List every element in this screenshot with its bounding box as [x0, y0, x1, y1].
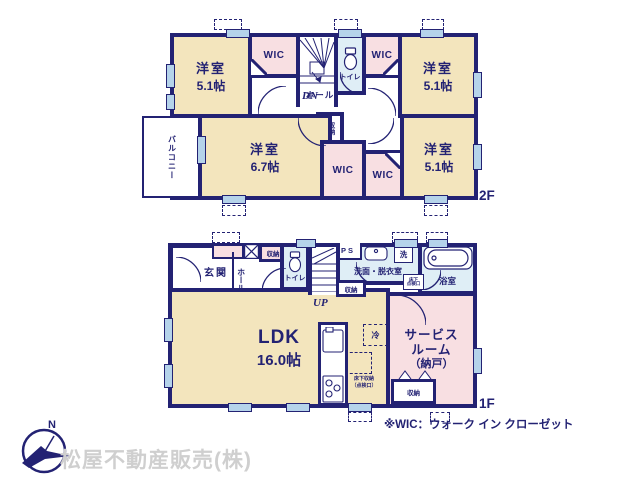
closet-label: 収納 [407, 387, 420, 397]
closet-label: 収納 [267, 248, 280, 258]
eave-dashed-box [424, 205, 448, 216]
door-arc [368, 118, 394, 144]
floor2-wic-top-right: WIC [362, 33, 402, 78]
room-size: 5.1帖 [197, 77, 226, 94]
floor1-hall-label: ホール [236, 262, 246, 298]
wic-label: WIC [373, 170, 394, 181]
window [394, 239, 418, 248]
room-size: 5.1帖 [424, 77, 453, 94]
refrigerator-label: 冷 [372, 330, 380, 341]
entrance-door-arc [176, 257, 201, 282]
floor2-bedroom-top-right: 洋室 5.1帖 [398, 33, 478, 118]
stove-icon [322, 375, 344, 403]
shoe-cabinet [212, 244, 244, 259]
door-arc [298, 118, 326, 146]
floor2-wic-bottom-center: WIC [320, 140, 366, 200]
door-arc [258, 86, 286, 114]
window [164, 318, 173, 342]
floor2-bedroom-top-left: 洋室 5.1帖 [170, 33, 252, 118]
window [296, 239, 316, 248]
entrance-label: 玄関 [196, 268, 236, 280]
pipe-space-label: PS [341, 246, 355, 255]
window [420, 29, 444, 38]
room-size: 6.7帖 [251, 158, 280, 175]
entrance-step-line [232, 252, 234, 290]
door-arc [340, 72, 362, 94]
door-arc [396, 295, 426, 325]
room-size: 5.1帖 [425, 158, 454, 175]
room-name: LDK [258, 327, 300, 349]
service-room-label-2: ルーム [411, 343, 451, 358]
window [473, 348, 482, 374]
window [164, 364, 173, 388]
angled-wall [251, 59, 267, 75]
window [338, 29, 362, 38]
wic-note: ※WIC：ウォーク イン クローゼット [384, 416, 573, 432]
bathroom-label: 浴室 [439, 275, 456, 287]
floor2-bedroom-bottom-right: 洋室 5.1帖 [400, 114, 478, 200]
floor2-wic-top-left: WIC [248, 33, 300, 78]
floor2-hall-label: ホール [296, 90, 344, 100]
room-name: 洋室 [423, 58, 453, 77]
window [226, 29, 250, 38]
kitchen-counter [318, 322, 348, 406]
stairs-treads [300, 38, 334, 90]
underfloor-hatch-label-2: 点検口 [407, 282, 421, 287]
window [166, 94, 175, 110]
compass-north-label: N [48, 419, 56, 432]
angled-wall [383, 59, 399, 75]
floor1-service-closet: 収納 [391, 379, 436, 404]
wic-label: WIC [333, 165, 354, 176]
floor2-label: 2F [479, 188, 495, 203]
window [166, 64, 175, 88]
floor-plan-page: バルコニー 洋室 5.1帖 WIC DN [0, 0, 640, 480]
floor-storage-label: 床下収納 （点検口） [344, 376, 384, 390]
window [228, 403, 252, 412]
window [473, 144, 482, 170]
room-name: 洋室 [250, 139, 280, 158]
window [473, 72, 482, 98]
door-arc [421, 270, 441, 290]
stairs-treads [312, 248, 336, 292]
eave-dashed-box [212, 232, 240, 243]
service-room-label-1: サービス [404, 328, 458, 343]
laundry-label: 洗 [400, 249, 408, 260]
floor1-label: 1F [479, 396, 495, 411]
door-arc [262, 268, 286, 292]
bathtub-icon [423, 246, 473, 270]
door-arc [368, 88, 396, 116]
closet-label: 収納 [345, 284, 358, 294]
tall-cabinet-icon [244, 244, 259, 259]
eave-dashed-box [222, 205, 246, 216]
window-balcony-door [197, 136, 206, 164]
floor-storage-hatch [345, 352, 372, 374]
door-arc [356, 262, 379, 285]
window [286, 403, 310, 412]
sink-icon [364, 246, 388, 261]
window [428, 239, 448, 248]
room-size: 16.0帖 [257, 349, 301, 370]
refrigerator-space: 冷 [363, 324, 388, 346]
kitchen-sink-icon [322, 327, 344, 353]
eave-dashed-box [348, 412, 372, 422]
window [222, 195, 246, 204]
toilet-label: トイレ [285, 273, 306, 283]
room-name: 洋室 [196, 58, 226, 77]
folding-door-marks [393, 370, 438, 379]
angled-wall [385, 153, 401, 169]
balcony-label: バルコニー [167, 135, 178, 180]
company-name: 松屋不動産販売(株) [60, 444, 252, 474]
window [424, 195, 448, 204]
toilet-icon [288, 251, 302, 273]
stairs-up-label: UP [313, 297, 328, 309]
room-name: 洋室 [424, 139, 454, 158]
toilet-icon [343, 47, 358, 71]
balcony: バルコニー [142, 116, 202, 198]
floor2-wic-bottom-right: WIC [362, 150, 404, 200]
floor1-ldk: LDK 16.0帖 [168, 288, 390, 408]
window [348, 403, 372, 412]
